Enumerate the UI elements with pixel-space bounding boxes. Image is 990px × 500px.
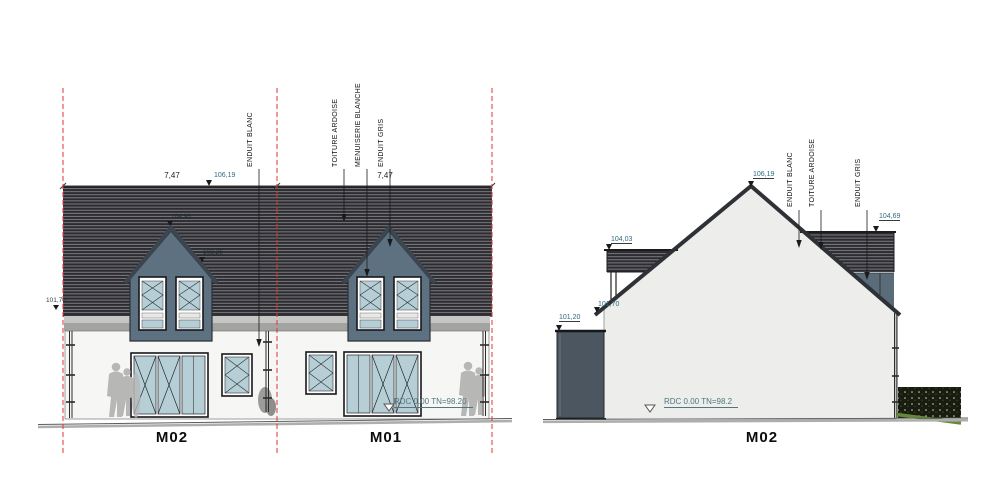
dormer-peak-level-text: 104,96 <box>171 213 191 220</box>
ridge-level-marker <box>206 180 212 186</box>
gable-wall <box>604 187 896 419</box>
front-eaves-level-text: 101,70 <box>46 297 66 304</box>
annex-level-text: 101,20 <box>559 314 580 322</box>
window-m02 <box>222 354 252 396</box>
side-callout-enduit-blanc: ENDUIT BLANC <box>787 152 795 207</box>
callout-enduit-gris: ENDUIT GRIS <box>378 119 386 167</box>
side-ridge-level-text: 106,19 <box>753 171 774 179</box>
annex <box>555 331 606 419</box>
unit-label-m02: M02 <box>142 429 202 446</box>
flat-roof-left-level-text: 104,03 <box>611 236 632 244</box>
side-elevation-drawing <box>540 135 980 435</box>
eaves-level-marker <box>53 305 59 310</box>
door-m02 <box>131 353 208 417</box>
window-m01 <box>306 352 336 394</box>
dormer-base-level-text: 103,26 <box>203 249 223 256</box>
dimension-left: 7,47 <box>152 171 192 180</box>
dormer-window <box>176 277 203 330</box>
side-callout-enduit-gris: ENDUIT GRIS <box>855 159 863 207</box>
unit-label-m01: M01 <box>356 429 416 446</box>
dimension-right: 7,47 <box>365 171 405 180</box>
elevation-sheet: 7,47 7,47 106,19 101,70 104,96 103,26 RD… <box>0 0 990 500</box>
hedge <box>898 387 961 418</box>
callout-enduit-blanc: ENDUIT BLANC <box>247 112 255 167</box>
front-ground-line <box>38 419 512 428</box>
dormer-window <box>394 277 421 330</box>
flat-roof-right-level-text: 104,69 <box>879 213 900 221</box>
side-rdc-note: RDC 0.00 TN=98.2 <box>664 397 738 408</box>
side-eaves-level-text: 101,70 <box>598 301 619 308</box>
dormer-window <box>139 277 166 330</box>
front-rdc-note: RDC 0.00 TN=98.20 <box>394 397 473 408</box>
side-callout-toiture-ardoise: TOITURE ARDOISE <box>809 139 817 207</box>
ridge-level-text: 106,19 <box>214 172 235 179</box>
side-unit-label: M02 <box>732 429 792 446</box>
callout-toiture-ardoise: TOITURE ARDOISE <box>332 99 340 167</box>
callout-menuiserie-blanche: MENUISERIE BLANCHE <box>355 83 363 167</box>
dormer-window <box>357 277 384 330</box>
